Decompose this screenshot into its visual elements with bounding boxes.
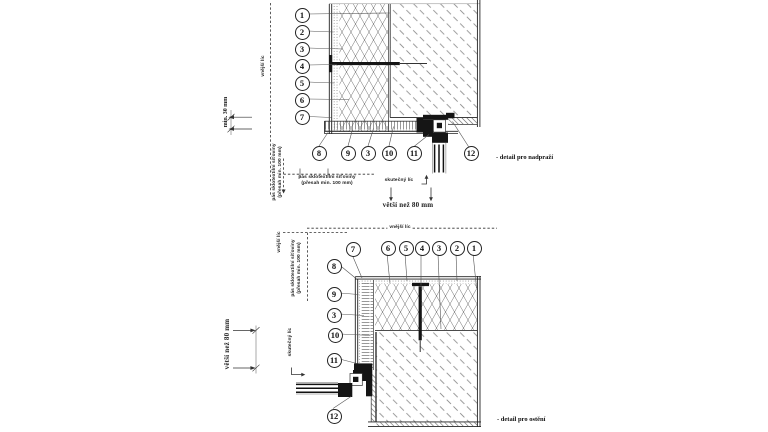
callout-2: 2: [450, 241, 465, 256]
drawing-linework: [0, 0, 768, 432]
label-min-30-mm: min. 30 mm: [223, 97, 229, 128]
wall-section: [325, 0, 481, 134]
callout-8: 8: [312, 146, 327, 161]
callout-1: 1: [467, 241, 482, 256]
callout-5: 5: [399, 241, 414, 256]
wall-section: [354, 276, 481, 427]
callout-9: 9: [341, 146, 356, 161]
detail-title-osteni: - detail pro ostění: [497, 416, 545, 423]
label-mesh-strip-note-vertical: pás sklotextilní síťoviny (přesah min. 1…: [291, 239, 303, 296]
callout-3: 3: [327, 308, 342, 323]
callout-11: 11: [407, 146, 422, 161]
callout-3: 3: [295, 42, 310, 57]
callout-11: 11: [327, 353, 342, 368]
callout-4: 4: [295, 59, 310, 74]
callout-12: 12: [327, 409, 342, 424]
label-span-80-mm: větší než 80 mm: [223, 319, 231, 370]
label-actual-face: skutečný líc: [288, 328, 294, 357]
label-actual-face: skutečný líc: [385, 178, 414, 184]
label-outer-face: vnější líc: [261, 55, 267, 76]
detail-title-nadprazi: - detail pro nadpraží: [496, 154, 553, 161]
callout-6: 6: [381, 241, 396, 256]
label-mesh-strip-note-vertical: pás sklotextilní síťoviny (přesah min. 1…: [272, 143, 284, 200]
callout-2: 2: [295, 25, 310, 40]
label-outer-face-vertical: vnější líc: [277, 231, 283, 252]
callout-5: 5: [295, 76, 310, 91]
callout-1: 1: [295, 8, 310, 23]
callout-9: 9: [327, 287, 342, 302]
dimension-lines: [233, 326, 260, 374]
label-mesh-strip-note: pás sklotextilní síťoviny (přesah min. 1…: [298, 175, 355, 187]
top-detail-drawing: [228, 0, 481, 201]
callout-7: 7: [346, 242, 361, 257]
bottom-detail-drawing: [233, 228, 497, 427]
label-outer-face: vnější líc: [387, 225, 412, 231]
callout-8: 8: [327, 259, 342, 274]
callout-10: 10: [328, 328, 343, 343]
callout-10: 10: [382, 146, 397, 161]
window-frame: [296, 370, 372, 397]
callout-4: 4: [415, 241, 430, 256]
construction-detail-sheet: 1 2 3 4 5 6 7 8 9 3 10 11 12 vnější líc …: [0, 0, 768, 432]
callout-12: 12: [464, 146, 479, 161]
label-span-80-mm: větší než 80 mm: [383, 201, 434, 209]
callout-7: 7: [295, 110, 310, 125]
callout-3: 3: [432, 241, 447, 256]
callout-6: 6: [295, 93, 310, 108]
callout-3: 3: [361, 146, 376, 161]
